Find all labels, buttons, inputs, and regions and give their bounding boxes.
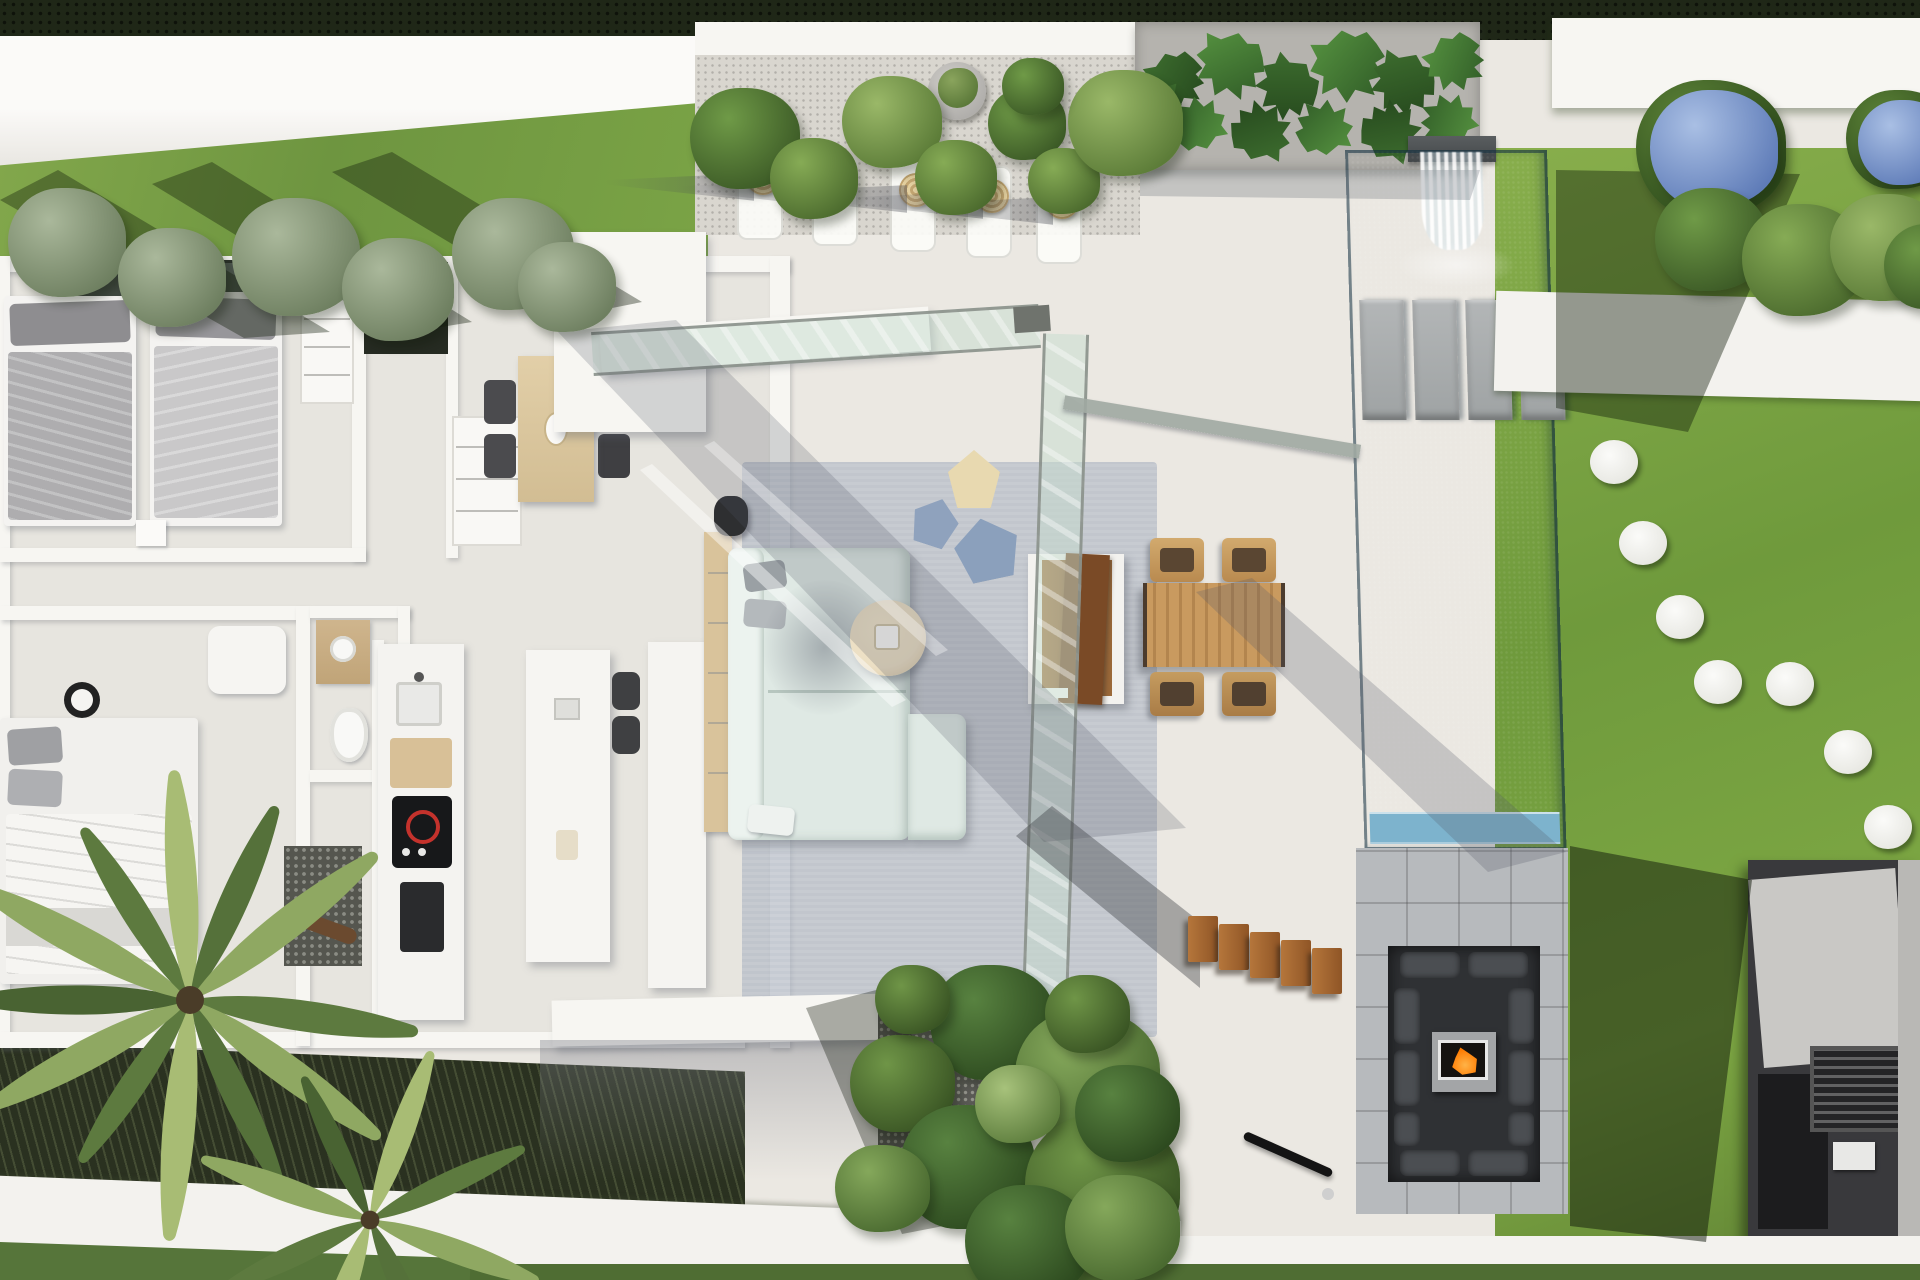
stepping-stone <box>1656 595 1704 639</box>
fire-pit-cushion <box>1394 1112 1420 1146</box>
waterfall-plume <box>1420 152 1485 250</box>
outdoor-dining-table <box>1143 583 1285 667</box>
ornamental-grass <box>342 238 454 341</box>
wall-bath-top <box>310 606 410 618</box>
fire-pit-cushion <box>1468 1150 1528 1176</box>
table-tray <box>874 624 900 650</box>
ornamental-grass <box>518 242 616 332</box>
bath-vanity <box>316 620 370 684</box>
stepping-stone <box>1694 660 1742 704</box>
pool-step-pad <box>1412 300 1459 420</box>
tree-canopy-blob <box>975 1065 1060 1143</box>
fire-pit-cushion <box>1394 1050 1420 1106</box>
outdoor-chair <box>1222 538 1276 582</box>
palm-tree-small <box>150 1000 590 1280</box>
tree-canopy-blob <box>875 965 950 1034</box>
island-sink <box>554 698 580 720</box>
wooden-step <box>1281 940 1311 986</box>
bed-1-pillows <box>9 300 130 346</box>
tree-canopy-blob <box>1065 1175 1180 1280</box>
wooden-step <box>1312 948 1342 994</box>
garden-path <box>1494 291 1920 401</box>
dining-chair <box>484 380 516 424</box>
fire-pit-cushion <box>1400 952 1460 978</box>
bar-stool <box>612 716 640 754</box>
glass-corner-post <box>1013 305 1051 333</box>
shrub <box>1068 70 1183 176</box>
dining-chair <box>598 434 630 478</box>
nightstand <box>136 520 166 546</box>
fire-pit-cushion <box>1468 952 1528 978</box>
stepping-stone <box>1590 440 1638 484</box>
bar-stool <box>612 672 640 710</box>
faucet <box>414 672 424 682</box>
bbq-counter-top <box>1748 868 1908 1068</box>
bed-2 <box>150 292 282 526</box>
fire-pit-cushion <box>1400 1150 1460 1176</box>
fire-pit-cushion <box>1508 988 1534 1044</box>
pool-step-pad <box>1359 300 1406 420</box>
kitchen-island <box>526 650 610 962</box>
armchair <box>208 626 286 694</box>
tree-canopy-blob <box>835 1145 930 1232</box>
pantry-slab <box>648 642 706 988</box>
fire-pit-cushion <box>1508 1050 1534 1106</box>
fire-pit-cushion <box>1508 1112 1534 1146</box>
fireplace-block <box>1432 1032 1496 1092</box>
wooden-step <box>1188 916 1218 962</box>
throw-pillow <box>742 559 787 593</box>
stepping-stone <box>1619 521 1667 565</box>
sofa-backrest <box>728 548 764 840</box>
torch-tip <box>1322 1188 1334 1200</box>
glass-beam-to-pool <box>1063 395 1361 458</box>
stepping-stone <box>1864 805 1912 849</box>
dining-chair <box>484 434 516 478</box>
bbq-grill-grate <box>1810 1046 1902 1132</box>
outdoor-chair <box>1150 672 1204 716</box>
outdoor-chair <box>1222 672 1276 716</box>
firebox <box>1438 1040 1488 1080</box>
sofa-chaise <box>908 714 966 840</box>
wall-bedroom1-bottom <box>0 548 366 562</box>
bbq-right-panel <box>1898 860 1920 1238</box>
wooden-step <box>1219 924 1249 970</box>
bbq-kitchen <box>1748 860 1920 1238</box>
shrub <box>1002 58 1064 115</box>
wooden-step <box>1250 932 1280 978</box>
shrub <box>915 140 997 215</box>
fire-pit-cushion <box>1394 988 1420 1044</box>
sofa-foot-pillow <box>747 804 796 837</box>
pool-shallow-shelf <box>1369 812 1560 844</box>
stepping-stone <box>1824 730 1872 774</box>
monstera-leaf <box>1188 24 1273 106</box>
flame <box>1448 1044 1480 1078</box>
waterfall-ripple <box>1396 242 1517 288</box>
garden-tree <box>820 950 1200 1280</box>
tree-canopy-blob <box>1075 1065 1180 1162</box>
garden-torch <box>1242 1131 1333 1178</box>
shrub <box>770 138 858 219</box>
tree-canopy-blob <box>1045 975 1130 1053</box>
bed-2-blanket <box>154 346 278 518</box>
bed-1-blanket <box>8 352 132 520</box>
bbq-tray <box>1833 1142 1875 1170</box>
ornamental-grass <box>118 228 226 327</box>
villa-aerial-render: Aerial top-down 3D architectural render … <box>0 0 1920 1280</box>
side-stool <box>714 496 748 536</box>
ornamental-grass <box>232 198 360 316</box>
pouf-cream <box>948 450 1000 508</box>
outdoor-chair <box>1150 538 1204 582</box>
coffee-table <box>850 600 926 676</box>
island-decor <box>556 830 578 860</box>
stepping-stone <box>1766 662 1814 706</box>
wall-bedroom2-top <box>0 606 306 620</box>
floor-lamp <box>64 682 100 718</box>
sunken-fire-pit <box>1388 946 1540 1182</box>
swimming-pool <box>1345 150 1567 850</box>
ornamental-grass <box>8 188 126 297</box>
bed-1 <box>4 296 136 526</box>
basin <box>330 636 356 662</box>
